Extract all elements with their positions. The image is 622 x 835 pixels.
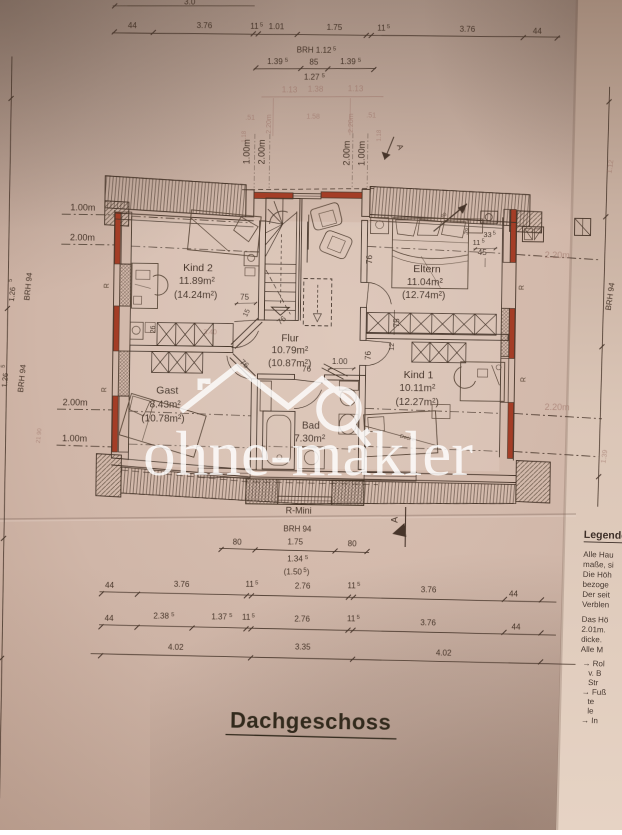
svg-text:5: 5 [252,613,255,619]
svg-text:(1.50: (1.50 [284,567,303,576]
svg-text:1.75: 1.75 [327,23,343,32]
svg-text:2.76: 2.76 [295,581,311,590]
svg-text:1.01: 1.01 [269,22,285,31]
svg-text:1.38: 1.38 [308,85,324,94]
svg-text:2.00m: 2.00m [341,141,351,166]
svg-text:5: 5 [493,231,496,237]
svg-text:Dachgeschoss: Dachgeschoss [230,708,392,735]
svg-text:Das Hö: Das Hö [582,615,609,625]
svg-text:ohne-makler: ohne-makler [143,418,473,489]
svg-text:3.35: 3.35 [295,642,311,651]
svg-text:11: 11 [250,22,259,31]
svg-text:4.02: 4.02 [436,648,452,657]
svg-text:2.20m: 2.20m [348,113,355,133]
svg-text:Str: Str [588,678,599,687]
svg-text:5: 5 [333,46,336,52]
svg-text:2.01m.: 2.01m. [581,625,606,635]
svg-text:Legende: Legende [584,529,622,542]
svg-text:(12.74m²): (12.74m²) [402,290,446,302]
svg-text:5: 5 [0,364,6,368]
svg-text:Alle Hau: Alle Hau [583,550,613,560]
svg-text:1.00m: 1.00m [62,433,87,443]
svg-text:12: 12 [389,343,396,351]
svg-text:Eltern: Eltern [413,263,441,275]
svg-text:1.00: 1.00 [332,357,348,366]
svg-text:Flur: Flur [281,333,299,344]
svg-text:maße, si: maße, si [583,560,614,570]
svg-text:3.76: 3.76 [174,580,190,589]
svg-text:11: 11 [472,238,480,247]
svg-text:45: 45 [478,248,488,257]
svg-text:4.02: 4.02 [168,643,184,652]
svg-text:BRH 94: BRH 94 [283,524,312,533]
svg-text:44: 44 [128,21,138,30]
svg-text:→ In: → In [581,716,598,725]
svg-text:1.00m: 1.00m [241,139,251,164]
svg-text:2.00m: 2.00m [256,139,266,164]
svg-text:.51: .51 [245,115,255,122]
svg-text:2.20m: 2.20m [545,402,570,412]
svg-text:Alle M: Alle M [581,645,604,655]
svg-text:3.76: 3.76 [421,585,437,594]
svg-text:1.13: 1.13 [282,85,298,94]
svg-text:v. B: v. B [588,669,601,678]
svg-text:R: R [520,377,527,382]
svg-text:1.34: 1.34 [287,554,303,563]
svg-text:2.76: 2.76 [294,614,310,623]
svg-text:BRH 1.12: BRH 1.12 [297,45,332,54]
svg-text:Gast: Gast [156,385,178,397]
svg-text:11.89m²: 11.89m² [179,276,216,288]
svg-text:1.26: 1.26 [0,372,10,387]
svg-text:44: 44 [509,589,519,598]
svg-text:R: R [104,283,111,288]
svg-text:5: 5 [387,24,390,30]
svg-text:1.27: 1.27 [304,73,320,82]
svg-text:1.39: 1.39 [267,57,283,66]
svg-text:5: 5 [260,22,263,28]
svg-text:2.38: 2.38 [153,611,169,620]
svg-text:R-Mini: R-Mini [286,505,312,515]
svg-text:→ Fuß: → Fuß [582,687,607,697]
svg-text:Kind 2: Kind 2 [183,262,213,274]
svg-text:2.00m: 2.00m [63,397,88,407]
svg-text:te: te [587,697,594,706]
svg-text:1.58: 1.58 [306,114,320,121]
svg-text:3.0: 3.0 [184,0,196,7]
svg-text:5: 5 [357,582,360,588]
svg-text:R: R [101,387,108,392]
svg-text:Kind 1: Kind 1 [404,369,434,381]
svg-text:(14.24m²): (14.24m²) [174,290,218,302]
svg-text:5: 5 [305,555,308,561]
svg-text:1.13: 1.13 [348,84,364,93]
svg-text:44: 44 [105,614,115,623]
svg-text:Verblen: Verblen [582,600,609,610]
svg-text:5: 5 [171,612,174,618]
svg-text:3.76: 3.76 [197,21,213,30]
svg-text:2.20m: 2.20m [266,114,273,134]
svg-text:5: 5 [255,580,258,586]
svg-text:.51: .51 [366,112,376,119]
svg-text:5: 5 [482,239,485,245]
svg-text:11: 11 [347,581,356,590]
svg-text:A: A [389,517,399,523]
svg-text:44: 44 [105,581,115,590]
svg-text:76: 76 [364,350,373,360]
svg-text:2.00m: 2.00m [70,232,95,242]
svg-text:11.04m²: 11.04m² [407,277,444,289]
svg-text:bezoge: bezoge [582,580,609,590]
svg-text:3.76: 3.76 [420,618,436,627]
svg-text:1.37: 1.37 [211,612,227,621]
svg-text:1.18: 1.18 [377,129,383,141]
svg-text:1.00m: 1.00m [356,141,366,166]
svg-text:1.75: 1.75 [287,537,303,546]
svg-text:1.39: 1.39 [340,57,356,66]
svg-text:Der seit: Der seit [582,590,611,600]
svg-text:11: 11 [347,614,356,623]
svg-text:le: le [587,706,594,715]
svg-text:10.11m²: 10.11m² [399,383,436,395]
svg-text:5: 5 [358,58,361,64]
svg-text:10.79m²: 10.79m² [271,345,309,357]
svg-text:5: 5 [285,58,288,64]
svg-text:80: 80 [348,539,358,548]
svg-text:11: 11 [242,613,251,622]
svg-text:3.76: 3.76 [460,25,476,34]
svg-text:85: 85 [309,58,319,67]
svg-text:Die Höh: Die Höh [583,570,612,580]
svg-text:11: 11 [245,580,254,589]
svg-text:dicke.: dicke. [581,635,602,645]
svg-text:2.20m: 2.20m [545,250,570,260]
svg-text:76: 76 [365,254,374,264]
svg-text:76: 76 [302,365,312,374]
svg-text:5: 5 [322,73,325,79]
svg-text:1.26: 1.26 [7,287,17,302]
svg-text:44: 44 [533,27,543,36]
svg-text:5: 5 [357,615,360,621]
svg-text:→ Rol: → Rol [582,659,605,669]
svg-text:1.00m: 1.00m [70,202,95,212]
svg-text:R: R [519,285,526,290]
svg-text:75: 75 [240,293,250,302]
svg-text:44: 44 [512,622,522,631]
svg-text:5: 5 [8,279,14,283]
svg-text:11: 11 [377,24,386,33]
svg-text:5: 5 [229,613,232,619]
svg-text:): ) [307,568,310,577]
svg-text:80: 80 [233,538,243,547]
